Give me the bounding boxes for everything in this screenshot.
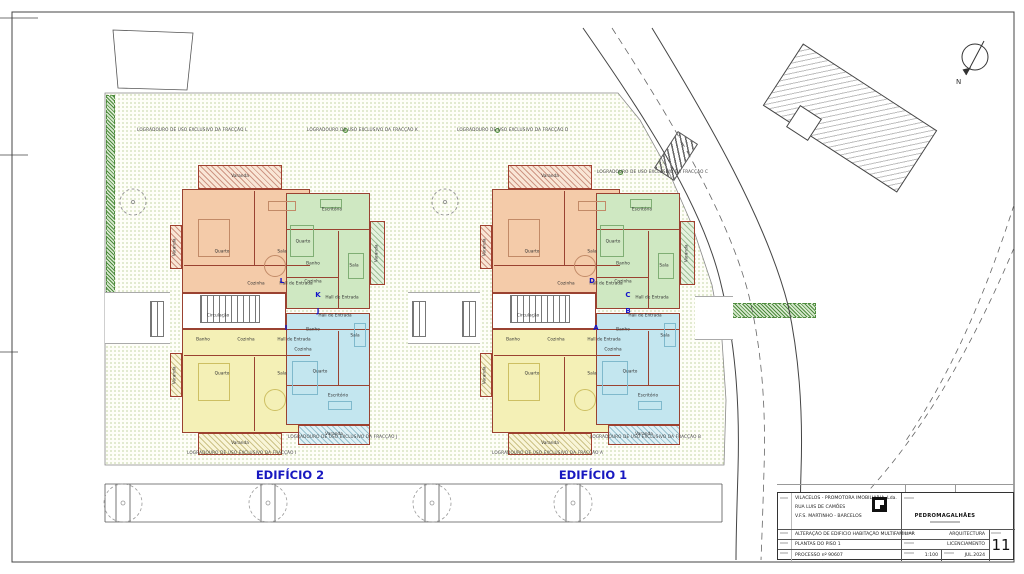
furniture — [268, 201, 296, 211]
balcony: Varanda — [480, 225, 492, 269]
furniture — [630, 199, 652, 208]
wall — [184, 355, 310, 356]
logo-inner — [875, 500, 884, 509]
room-label: Varanda — [174, 238, 179, 256]
process-number: PROCESSO nº 90607 — [795, 553, 843, 558]
room-label: Hall de Entrada — [318, 315, 351, 320]
room-label: Sala — [587, 251, 596, 256]
room-label: Quarto — [525, 373, 540, 378]
room-label: Varanda — [541, 442, 559, 447]
room-label: Cozinha — [547, 339, 564, 344]
exterior-steps — [462, 301, 476, 337]
title-block-tick — [905, 484, 906, 492]
architect-name: PEDROMAGALHÃES — [901, 513, 989, 519]
hedge-right — [728, 303, 816, 318]
architect-logo — [872, 497, 887, 512]
room-label: Cozinha — [247, 283, 264, 288]
wall — [494, 355, 620, 356]
room-label: Cozinha — [557, 283, 574, 288]
room-label: Varanda — [231, 175, 249, 180]
wall — [338, 331, 339, 385]
field-caption — [904, 497, 914, 499]
room-label: Quarto — [313, 371, 328, 376]
room-label: Circulação — [517, 315, 539, 320]
logradouro-label: LOGRADOURO DE USO EXCLUSIVO DA FRACÇÃO A — [492, 450, 603, 455]
client-address-1: RUA LUIS DE CAMÕES — [795, 505, 845, 510]
field-caption — [780, 532, 788, 534]
furniture — [328, 401, 352, 410]
room-label: Sala — [349, 265, 358, 270]
room-label: Hall de Entrada — [325, 297, 358, 302]
wall — [184, 265, 310, 266]
building-1-title: EDIFÍCIO 1 — [538, 468, 648, 482]
room-label: Cozinha — [604, 349, 621, 354]
walkway-middle — [408, 292, 480, 344]
title-block-topline — [777, 484, 1014, 485]
title-block: VILACELOS - PROMOTORA IMOBILIARIA, Lda. … — [777, 483, 1014, 560]
room-label: Escritório — [328, 395, 348, 400]
specialty: ARQUITECTURA — [901, 532, 985, 537]
wall — [648, 331, 649, 385]
room-label: Sala — [660, 335, 669, 340]
wall — [254, 191, 255, 265]
north-label: N — [956, 78, 961, 86]
room-label: Escritório — [322, 209, 342, 214]
balcony: Varanda — [680, 221, 695, 285]
drawing-title: PLANTAS DO PISO 1 — [795, 542, 841, 547]
unit-letter: A — [593, 324, 598, 332]
existing-building — [763, 43, 937, 192]
room-label: Escritório — [632, 209, 652, 214]
wall — [286, 277, 338, 278]
furniture — [320, 199, 342, 208]
field-caption — [780, 552, 788, 554]
parking-divider — [116, 484, 580, 522]
room-label: Sala — [277, 251, 286, 256]
furniture — [198, 363, 230, 401]
hedge-left — [106, 95, 115, 305]
room-label: Cozinha — [304, 281, 321, 286]
logradouro-label: LOGRADOURO DE USO EXCLUSIVO DA FRACÇÃO L — [137, 127, 248, 132]
room-label: Hall de Entrada — [628, 315, 661, 320]
title-block-box: VILACELOS - PROMOTORA IMOBILIARIA, Lda. … — [777, 492, 1014, 560]
wall — [596, 277, 648, 278]
furniture — [574, 389, 596, 411]
logradouro-label: LOGRADOURO DE USO EXCLUSIVO DA FRACÇÃO K — [307, 127, 418, 132]
room-label: Varanda — [174, 366, 179, 384]
logo-core — [880, 505, 885, 510]
room-label: Quarto — [623, 371, 638, 376]
building-2-title: EDIFÍCIO 2 — [235, 468, 345, 482]
furniture — [578, 201, 606, 211]
balcony: Varanda — [508, 165, 592, 189]
room-label: Hall de Entrada — [277, 339, 310, 344]
room-label: Quarto — [215, 373, 230, 378]
room-label: Sala — [659, 265, 668, 270]
unit-letter: K — [315, 291, 320, 299]
room-label: Banho — [616, 329, 630, 334]
neighbour-plot — [113, 30, 193, 90]
edificio-1-plan: VarandaVarandaVarandaVarandaVarandaVaran… — [480, 165, 695, 455]
balcony: Varanda — [370, 221, 385, 285]
furniture — [638, 401, 662, 410]
wall — [254, 357, 255, 431]
unit-letter: L — [280, 277, 284, 285]
edge-ticks — [0, 18, 38, 352]
phase: LICENCIAMENTO — [901, 542, 985, 547]
room-label: Banho — [506, 339, 520, 344]
logradouro-label: LOGRADOURO DE USO EXCLUSIVO DA FRACÇÃO D — [457, 127, 568, 132]
logradouro-label: LOGRADOURO DE USO EXCLUSIVO DA FRACÇÃO J — [288, 434, 397, 439]
exterior-steps — [412, 301, 426, 337]
room-label: Cozinha — [237, 339, 254, 344]
balcony: Varanda — [170, 225, 182, 269]
room-label: Quarto — [525, 251, 540, 256]
divider — [941, 549, 942, 561]
furniture — [574, 255, 596, 277]
north-arrow-icon: N — [956, 41, 988, 86]
unit-letter: J — [317, 307, 320, 315]
room-label: Quarto — [215, 251, 230, 256]
room-label: Cozinha — [294, 349, 311, 354]
unit-letter: I — [285, 324, 288, 332]
room-label: Varanda — [375, 244, 380, 262]
room-label: Escritório — [638, 395, 658, 400]
room-label: Sala — [277, 373, 286, 378]
divider — [778, 539, 989, 540]
logradouro-label: LOGRADOURO DE USO EXCLUSIVO DA FRACÇÃO C — [597, 169, 708, 174]
project-title: ALTERAÇÃO DE EDIFICIO HABITAÇÃO MULTIFAM… — [795, 532, 915, 537]
room-label: Quarto — [296, 241, 311, 246]
balcony: Varanda — [170, 353, 182, 397]
date: JUL.2024 — [944, 553, 985, 558]
furniture — [292, 361, 318, 395]
room-label: Varanda — [231, 442, 249, 447]
room-label: Sala — [350, 335, 359, 340]
furniture — [264, 255, 286, 277]
furniture — [508, 363, 540, 401]
walkway-left — [105, 292, 170, 344]
unit-letter: D — [589, 277, 595, 285]
room-label: Circulação — [207, 315, 229, 320]
furniture — [602, 361, 628, 395]
parking-strip — [104, 484, 722, 522]
room-label: Sala — [587, 373, 596, 378]
unit-letter: B — [625, 307, 630, 315]
divider — [791, 493, 792, 561]
room-label: Quarto — [606, 241, 621, 246]
room-label: Banho — [196, 339, 210, 344]
room-label: Hall de Entrada — [587, 339, 620, 344]
drawing-sheet: N VarandaVarandaVarandaVarandaVarandaVar… — [0, 0, 1024, 574]
client-address-2: V.F.S. MARTINHO - BARCELOS — [795, 514, 862, 519]
room-label: Varanda — [484, 238, 489, 256]
unit-letter: C — [625, 291, 630, 299]
walkway-right — [695, 296, 733, 340]
wall — [564, 191, 565, 265]
logradouro-label: LOGRADOURO DE USO EXCLUSIVO DA FRACÇÃO B — [590, 434, 701, 439]
balcony: Varanda — [480, 353, 492, 397]
architect-subtitle — [930, 521, 960, 523]
divider — [778, 529, 1015, 530]
exterior-steps — [150, 301, 164, 337]
field-caption — [780, 542, 788, 544]
title-block-tick — [955, 484, 956, 492]
room-label: Varanda — [484, 366, 489, 384]
wall — [564, 357, 565, 431]
wall — [494, 265, 620, 266]
room-label: Hall de Entrada — [635, 297, 668, 302]
room-label: Banho — [306, 263, 320, 268]
sheet-number: 11 — [989, 529, 1013, 561]
logradouro-label: LOGRADOURO DE USO EXCLUSIVO DA FRACÇÃO I — [187, 450, 296, 455]
field-caption — [780, 497, 788, 499]
divider — [901, 493, 902, 561]
balcony: Varanda — [198, 165, 282, 189]
furniture — [264, 389, 286, 411]
room-label: Varanda — [685, 244, 690, 262]
tree-icon — [104, 484, 592, 522]
divider — [778, 549, 989, 550]
room-label: Banho — [306, 329, 320, 334]
scale: 1:100 — [901, 553, 938, 558]
room-label: Varanda — [541, 175, 559, 180]
edificio-2-plan: VarandaVarandaVarandaVarandaVarandaVaran… — [170, 165, 385, 455]
room-label: Banho — [616, 263, 630, 268]
room-label: Cozinha — [614, 281, 631, 286]
